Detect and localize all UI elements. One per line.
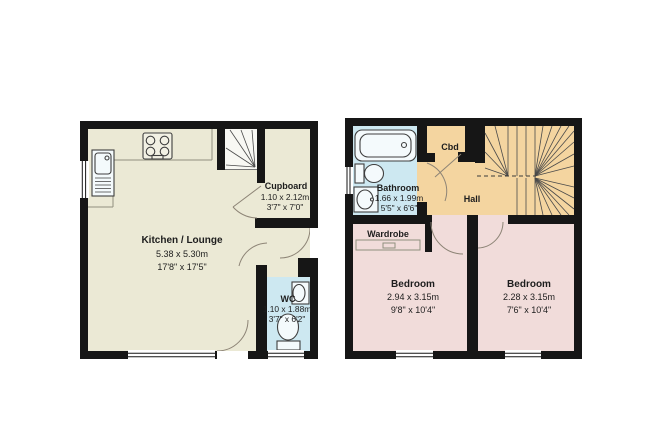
bathroom-imperial: 5'5" x 6'6"	[381, 203, 418, 213]
ff-stairs-bottom-wall	[508, 215, 574, 224]
toilet-icon	[355, 164, 384, 183]
floorplan-canvas: Kitchen / Lounge 5.38 x 5.30m 17'8" x 17…	[0, 0, 656, 433]
wc-corner-wall	[298, 258, 310, 277]
cbd-right-stub	[458, 152, 465, 162]
cbd-left-stub	[417, 153, 435, 162]
bedroom-divider-wall	[467, 215, 478, 351]
bathroom-label: Bathroom	[377, 183, 420, 193]
gf-stairs-wall	[217, 129, 225, 170]
kitchen-lounge-label: Kitchen / Lounge	[141, 235, 223, 246]
cupboard-metric: 1.10 x 2.12m	[261, 192, 309, 202]
bedroom1-imperial: 9'8" x 10'4"	[391, 305, 435, 315]
bathroom-metric: 1.66 x 1.99m	[375, 193, 423, 203]
bedroom1-metric: 2.94 x 3.15m	[387, 292, 439, 302]
bedroom2-metric: 2.28 x 3.15m	[503, 292, 555, 302]
hall-bedroom-wall	[345, 215, 432, 224]
cupboard-imperial: 3'7" x 7'0"	[267, 202, 304, 212]
first-floor-plan: Bathroom 1.66 x 1.99m 5'5" x 6'6" Cbd Ha…	[344, 118, 582, 360]
bedroom1-door-gap	[432, 215, 467, 224]
bedroom2-imperial: 7'6" x 10'4"	[507, 305, 551, 315]
hall-label: Hall	[464, 194, 481, 204]
kitchen-lounge-imperial: 17'8" x 17'5"	[157, 262, 206, 272]
bathtub-icon	[355, 130, 416, 161]
wc-imperial: 3'7" x 6'2"	[269, 314, 306, 324]
bedroom1-label: Bedroom	[391, 279, 435, 290]
bedroom2-door-gap	[478, 215, 508, 224]
cupboard-left-wall	[257, 129, 265, 183]
sink-icon	[92, 150, 114, 196]
cbd-label: Cbd	[441, 142, 459, 152]
kitchen-lounge-metric: 5.38 x 5.30m	[156, 249, 208, 259]
ground-floor-plan: Kitchen / Lounge 5.38 x 5.30m 17'8" x 17…	[79, 121, 318, 360]
bedroom2-label: Bedroom	[507, 279, 551, 290]
gf-entrance-door-opening	[217, 351, 248, 359]
bathroom-wall-lower	[417, 202, 427, 215]
wardrobe-stub-wall	[425, 224, 432, 252]
wc-metric: 1.10 x 1.88m	[263, 304, 311, 314]
floorplan-svg: Kitchen / Lounge 5.38 x 5.30m 17'8" x 17…	[0, 0, 656, 433]
ff-stairs-left-wall	[475, 126, 485, 163]
hob-icon	[143, 133, 172, 159]
cupboard-bottom-wall	[255, 218, 310, 228]
wardrobe-label: Wardrobe	[367, 229, 409, 239]
gf-front-door-opening	[310, 228, 318, 258]
cupboard-label: Cupboard	[265, 181, 308, 191]
cbd-right-wall	[465, 126, 475, 162]
wc-label: WC	[281, 294, 296, 304]
